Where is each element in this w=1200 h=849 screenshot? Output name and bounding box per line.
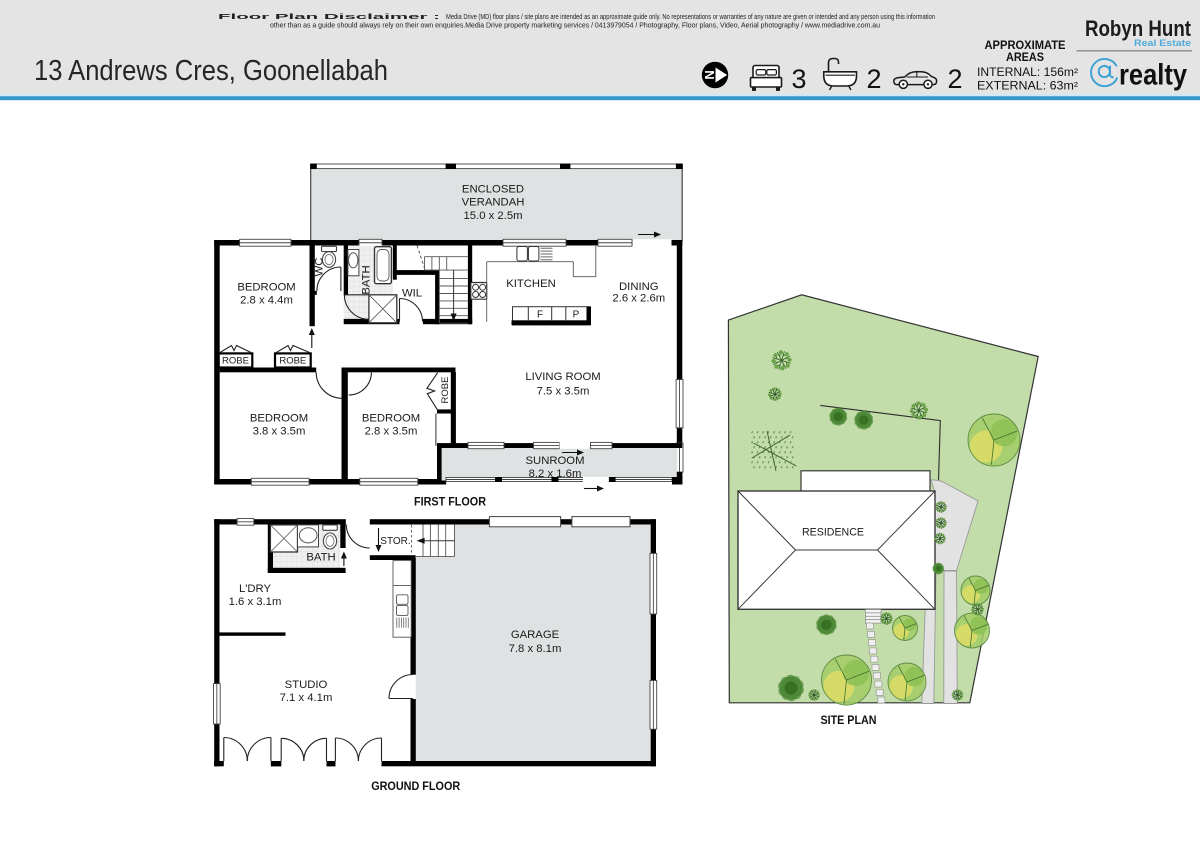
svg-text:DINING: DINING bbox=[619, 281, 659, 293]
svg-text:GROUND FLOOR: GROUND FLOOR bbox=[371, 781, 461, 793]
svg-text:INTERNAL: 156m²: INTERNAL: 156m² bbox=[977, 67, 1078, 79]
svg-text:2: 2 bbox=[866, 64, 881, 94]
svg-text:BEDROOM: BEDROOM bbox=[250, 413, 308, 425]
svg-text:AREAS: AREAS bbox=[1006, 52, 1044, 64]
svg-text:ENCLOSED: ENCLOSED bbox=[462, 183, 524, 195]
svg-text:EXTERNAL: 63m²: EXTERNAL: 63m² bbox=[977, 81, 1078, 93]
svg-text:realty: realty bbox=[1119, 59, 1187, 92]
svg-text:RESIDENCE: RESIDENCE bbox=[802, 526, 864, 538]
svg-text:LIVING ROOM: LIVING ROOM bbox=[525, 371, 600, 383]
svg-text:3: 3 bbox=[791, 64, 806, 94]
svg-text:2.8 x 4.4m: 2.8 x 4.4m bbox=[240, 295, 293, 307]
svg-text:BEDROOM: BEDROOM bbox=[362, 413, 420, 425]
svg-text:ROBE: ROBE bbox=[279, 356, 306, 367]
svg-text:VERANDAH: VERANDAH bbox=[462, 197, 525, 209]
svg-text:L'DRY: L'DRY bbox=[239, 583, 272, 595]
svg-text:1.6 x 3.1m: 1.6 x 3.1m bbox=[229, 596, 282, 608]
svg-text:STOR.: STOR. bbox=[380, 536, 410, 547]
svg-text:BATH: BATH bbox=[360, 265, 372, 294]
svg-text:7.1 x 4.1m: 7.1 x 4.1m bbox=[280, 692, 333, 704]
svg-text:7.8 x 8.1m: 7.8 x 8.1m bbox=[509, 643, 562, 655]
svg-text:APPROXIMATE: APPROXIMATE bbox=[985, 40, 1066, 52]
svg-text:SITE PLAN: SITE PLAN bbox=[821, 715, 877, 727]
svg-text:ROBE: ROBE bbox=[222, 356, 249, 367]
svg-text:Real Estate: Real Estate bbox=[1134, 38, 1191, 48]
svg-text:F: F bbox=[537, 309, 543, 320]
svg-text:KITCHEN: KITCHEN bbox=[506, 278, 556, 290]
svg-text:2: 2 bbox=[947, 64, 962, 94]
svg-text:2.8 x 3.5m: 2.8 x 3.5m bbox=[365, 425, 418, 437]
svg-text:WC: WC bbox=[314, 258, 326, 277]
svg-text:GARAGE: GARAGE bbox=[511, 629, 560, 641]
svg-text:P: P bbox=[573, 309, 580, 320]
svg-text:BEDROOM: BEDROOM bbox=[237, 282, 295, 294]
svg-text:7.5 x 3.5m: 7.5 x 3.5m bbox=[537, 386, 590, 398]
svg-text:ROBE: ROBE bbox=[440, 377, 451, 404]
svg-text:3.8 x 3.5m: 3.8 x 3.5m bbox=[253, 425, 306, 437]
svg-text:SUNROOM: SUNROOM bbox=[526, 455, 585, 467]
svg-text:2.6 x 2.6m: 2.6 x 2.6m bbox=[612, 293, 665, 305]
svg-text:FIRST FLOOR: FIRST FLOOR bbox=[414, 497, 487, 509]
svg-text:STUDIO: STUDIO bbox=[285, 679, 328, 691]
svg-text:13 Andrews Cres, Goonellabah: 13 Andrews Cres, Goonellabah bbox=[34, 55, 388, 87]
svg-text:BATH: BATH bbox=[306, 551, 335, 563]
svg-text:N: N bbox=[702, 70, 717, 79]
svg-text:8.2 x 1.6m: 8.2 x 1.6m bbox=[529, 468, 582, 480]
svg-text:15.0 x 2.5m: 15.0 x 2.5m bbox=[463, 210, 522, 222]
svg-text:WIL: WIL bbox=[402, 287, 422, 299]
svg-text:other than as a guide should a: other than as a guide should always rely… bbox=[270, 21, 880, 30]
